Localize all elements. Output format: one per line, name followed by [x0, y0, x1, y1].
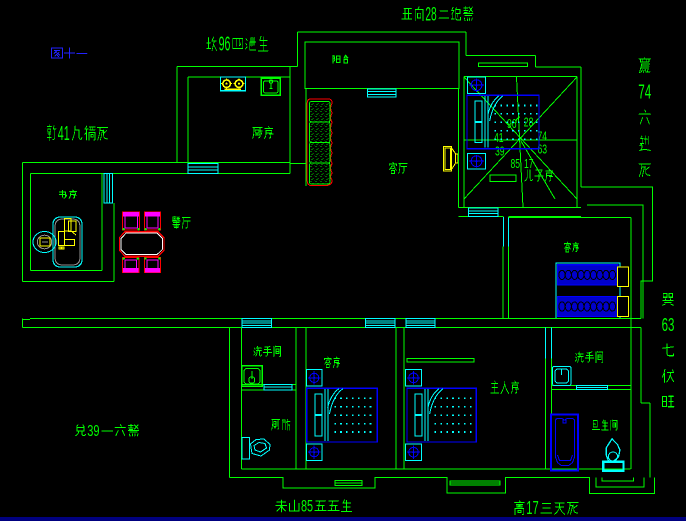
- svg-text:96: 96: [219, 33, 231, 56]
- svg-text:96: 96: [507, 116, 517, 131]
- svg-text:28: 28: [425, 4, 436, 25]
- svg-text:41: 41: [58, 122, 70, 145]
- svg-text:17: 17: [524, 156, 534, 171]
- svg-text:17: 17: [526, 497, 538, 518]
- svg-text:39: 39: [495, 144, 505, 159]
- svg-text:85: 85: [511, 156, 521, 171]
- svg-text:74: 74: [638, 81, 651, 104]
- svg-text:39: 39: [87, 423, 99, 440]
- svg-text:63: 63: [662, 315, 675, 335]
- svg-text:85: 85: [301, 496, 313, 515]
